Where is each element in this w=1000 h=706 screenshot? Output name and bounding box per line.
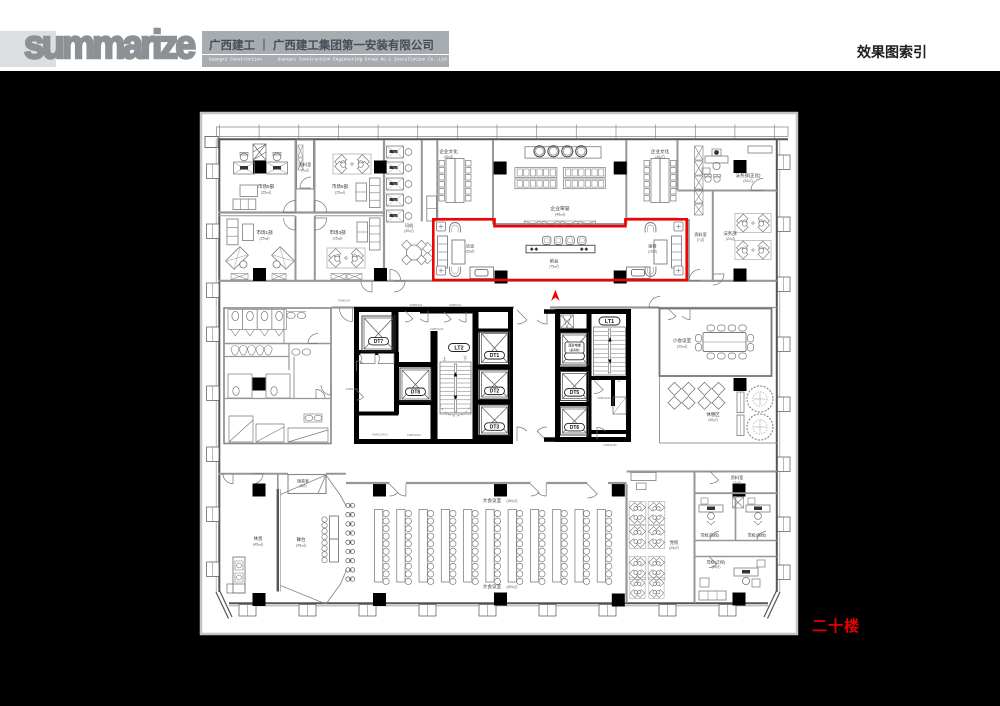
svg-text:接待: 接待 bbox=[648, 243, 657, 250]
svg-text:(200㎡): (200㎡) bbox=[507, 584, 518, 589]
svg-text:(25㎡): (25㎡) bbox=[677, 344, 687, 349]
svg-text:FWB1324b: FWB1324b bbox=[430, 327, 444, 331]
svg-text:(25㎡): (25㎡) bbox=[333, 236, 343, 241]
svg-text:DT3: DT3 bbox=[490, 424, 500, 430]
svg-text:市场1部: 市场1部 bbox=[256, 229, 273, 236]
svg-text:下: 下 bbox=[596, 378, 600, 382]
svg-text:(200㎡): (200㎡) bbox=[507, 498, 518, 503]
svg-text:市场3部: 市场3部 bbox=[329, 229, 346, 236]
svg-text:党校(正校): 党校(正校) bbox=[707, 559, 726, 565]
svg-text:(7㎡): (7㎡) bbox=[697, 237, 705, 242]
svg-text:FWB1524: FWB1524 bbox=[338, 299, 350, 303]
svg-text:FWB1524: FWB1524 bbox=[410, 303, 423, 307]
svg-text:资料室: 资料室 bbox=[694, 231, 707, 238]
svg-text:党校: 党校 bbox=[670, 539, 679, 546]
svg-text:DT6: DT6 bbox=[570, 425, 580, 431]
svg-text:党校(副校): 党校(副校) bbox=[701, 532, 720, 538]
svg-text:FWB1224b: FWB1224b bbox=[603, 443, 617, 447]
svg-text:FWB1024a: FWB1024a bbox=[407, 433, 421, 437]
svg-text:(25㎡): (25㎡) bbox=[261, 190, 271, 195]
svg-text:(40㎡): (40㎡) bbox=[655, 154, 664, 159]
svg-text:市场6部: 市场6部 bbox=[258, 183, 275, 190]
svg-text:FWB1224b: FWB1224b bbox=[597, 396, 611, 400]
svg-text:(75㎡): (75㎡) bbox=[549, 264, 558, 269]
svg-text:(15㎡): (15㎡) bbox=[648, 249, 657, 254]
svg-text:(45㎡): (45㎡) bbox=[296, 543, 306, 548]
svg-text:上: 上 bbox=[443, 356, 447, 361]
svg-text:DT1: DT1 bbox=[490, 353, 500, 359]
svg-text:资料室: 资料室 bbox=[731, 474, 744, 481]
svg-text:(15㎡): (15㎡) bbox=[466, 249, 475, 254]
svg-text:FWB1524: FWB1524 bbox=[346, 387, 359, 391]
svg-text:企业文化: 企业文化 bbox=[439, 148, 458, 155]
svg-text:(7㎡): (7㎡) bbox=[301, 168, 309, 173]
svg-text:DT8: DT8 bbox=[411, 390, 421, 396]
svg-text:(20㎡): (20㎡) bbox=[404, 228, 413, 233]
svg-text:(25㎡): (25㎡) bbox=[260, 236, 270, 241]
svg-text:上: 上 bbox=[617, 377, 621, 382]
svg-text:小会议室: 小会议室 bbox=[673, 337, 692, 344]
svg-text:大会议室: 大会议室 bbox=[483, 583, 502, 590]
svg-text:(兼客梯): (兼客梯) bbox=[569, 348, 579, 352]
svg-text:(20㎡): (20㎡) bbox=[712, 564, 721, 569]
svg-text:(25㎡): (25㎡) bbox=[335, 190, 345, 195]
svg-text:LT2: LT2 bbox=[454, 345, 463, 351]
svg-text:舞台: 舞台 bbox=[297, 536, 306, 543]
svg-text:FWB1024b/1: FWB1024b/1 bbox=[372, 433, 388, 437]
svg-text:资料室: 资料室 bbox=[299, 161, 312, 168]
svg-text:(20㎡): (20㎡) bbox=[726, 236, 735, 241]
svg-text:(45㎡): (45㎡) bbox=[253, 542, 263, 547]
svg-text:休憩区: 休憩区 bbox=[706, 411, 720, 418]
svg-text:消防电梯: 消防电梯 bbox=[568, 343, 582, 348]
svg-text:洽谈: 洽谈 bbox=[466, 243, 475, 250]
svg-text:市场5部: 市场5部 bbox=[332, 183, 349, 190]
svg-text:(40㎡): (40㎡) bbox=[444, 154, 453, 159]
svg-text:(20㎡): (20㎡) bbox=[743, 178, 752, 183]
svg-text:前台: 前台 bbox=[550, 258, 559, 265]
svg-text:下: 下 bbox=[463, 357, 467, 361]
svg-text:FWB1034: FWB1034 bbox=[449, 303, 461, 307]
svg-text:党校(副校): 党校(副校) bbox=[748, 532, 767, 538]
svg-text:DT7: DT7 bbox=[374, 339, 384, 345]
svg-text:大会议室: 大会议室 bbox=[483, 497, 502, 504]
svg-text:(7㎡): (7㎡) bbox=[733, 480, 741, 485]
svg-text:(46㎡): (46㎡) bbox=[555, 212, 565, 217]
svg-text:企业文化: 企业文化 bbox=[651, 148, 670, 155]
svg-text:DT5: DT5 bbox=[570, 390, 580, 396]
svg-text:(30㎡): (30㎡) bbox=[708, 417, 717, 422]
svg-text:(25㎡): (25㎡) bbox=[669, 545, 678, 550]
svg-text:司机: 司机 bbox=[405, 222, 414, 229]
svg-text:DT2: DT2 bbox=[490, 389, 500, 395]
svg-text:法务部: 法务部 bbox=[723, 230, 737, 237]
svg-text:企业荣誉: 企业荣誉 bbox=[550, 205, 569, 212]
svg-text:LT1: LT1 bbox=[605, 319, 614, 325]
svg-text:法务部(正化): 法务部(正化) bbox=[736, 172, 761, 179]
svg-text:休息: 休息 bbox=[254, 535, 263, 542]
